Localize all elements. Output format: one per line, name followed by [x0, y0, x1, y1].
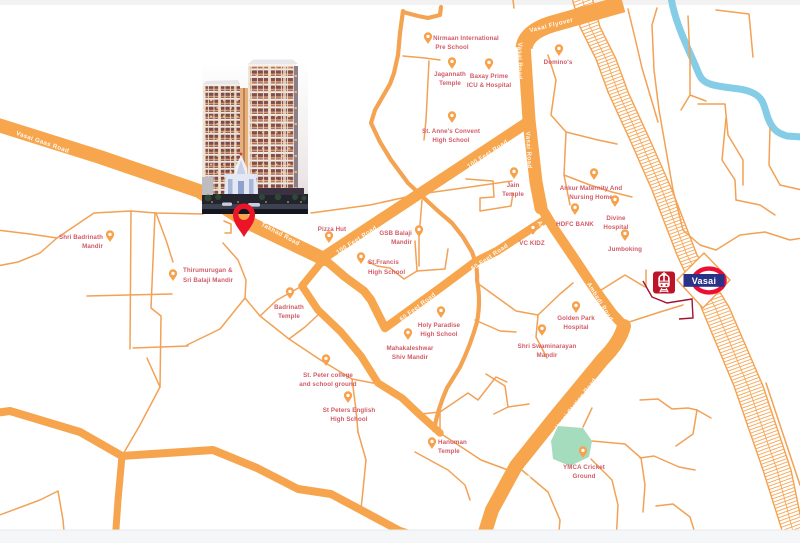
- svg-text:Mandir: Mandir: [82, 243, 103, 250]
- svg-text:High School: High School: [432, 137, 469, 144]
- svg-text:and school ground: and school ground: [299, 381, 357, 388]
- svg-text:Jumboking: Jumboking: [608, 246, 642, 253]
- svg-text:Ankur Maternity And: Ankur Maternity And: [560, 185, 623, 192]
- svg-text:Vasai Road: Vasai Road: [516, 42, 523, 79]
- svg-text:Baxay Prime: Baxay Prime: [470, 73, 509, 80]
- svg-text:Vasai: Vasai: [692, 276, 717, 286]
- svg-text:Thirumurugan &: Thirumurugan &: [183, 267, 233, 274]
- svg-text:Divine: Divine: [606, 215, 626, 222]
- svg-text:St. Peter college: St. Peter college: [303, 372, 353, 379]
- svg-text:Badrinath: Badrinath: [274, 304, 304, 311]
- svg-text:Temple: Temple: [502, 191, 524, 198]
- svg-text:GSB Balaji: GSB Balaji: [379, 230, 412, 237]
- svg-text:Pre School: Pre School: [435, 44, 469, 51]
- svg-text:ICU & Hospital: ICU & Hospital: [467, 82, 512, 89]
- svg-text:Sri Balaji Mandir: Sri Balaji Mandir: [183, 277, 234, 284]
- svg-text:YMCA Cricket: YMCA Cricket: [563, 464, 605, 471]
- svg-text:Temple: Temple: [278, 313, 300, 320]
- svg-text:HDFC BANK: HDFC BANK: [556, 221, 594, 228]
- svg-text:Temple: Temple: [438, 448, 460, 455]
- svg-text:Mandir: Mandir: [391, 239, 412, 246]
- svg-text:Mahakaleshwar: Mahakaleshwar: [386, 345, 434, 352]
- svg-text:Domino's: Domino's: [544, 59, 573, 66]
- svg-text:St Peters English: St Peters English: [323, 407, 376, 414]
- svg-text:Pizza Hut: Pizza Hut: [318, 226, 346, 233]
- svg-text:Golden Park: Golden Park: [557, 315, 595, 322]
- svg-text:High School: High School: [330, 416, 367, 423]
- svg-text:Shri Swaminarayan: Shri Swaminarayan: [518, 343, 577, 350]
- svg-text:Hospital: Hospital: [563, 324, 588, 331]
- svg-text:High School: High School: [368, 269, 405, 276]
- svg-text:VC KIDZ: VC KIDZ: [519, 240, 545, 247]
- svg-text:St. Anne's Convent: St. Anne's Convent: [422, 128, 480, 135]
- svg-text:Nursing Home: Nursing Home: [569, 194, 613, 201]
- svg-text:St.Francis: St.Francis: [368, 259, 399, 266]
- svg-text:Nirmaan International: Nirmaan International: [433, 35, 499, 42]
- svg-text:Temple: Temple: [439, 80, 461, 87]
- svg-text:Jain: Jain: [507, 182, 520, 189]
- svg-text:Shiv Mandir: Shiv Mandir: [392, 354, 429, 361]
- svg-text:Ground: Ground: [573, 473, 596, 480]
- svg-text:Hanuman: Hanuman: [438, 439, 467, 446]
- svg-text:Mandir: Mandir: [537, 352, 558, 359]
- svg-text:Holy Paradise: Holy Paradise: [418, 322, 461, 329]
- svg-text:Jagannath: Jagannath: [434, 71, 466, 78]
- svg-text:High School: High School: [420, 331, 457, 338]
- svg-text:Shri Badrinath: Shri Badrinath: [59, 234, 103, 241]
